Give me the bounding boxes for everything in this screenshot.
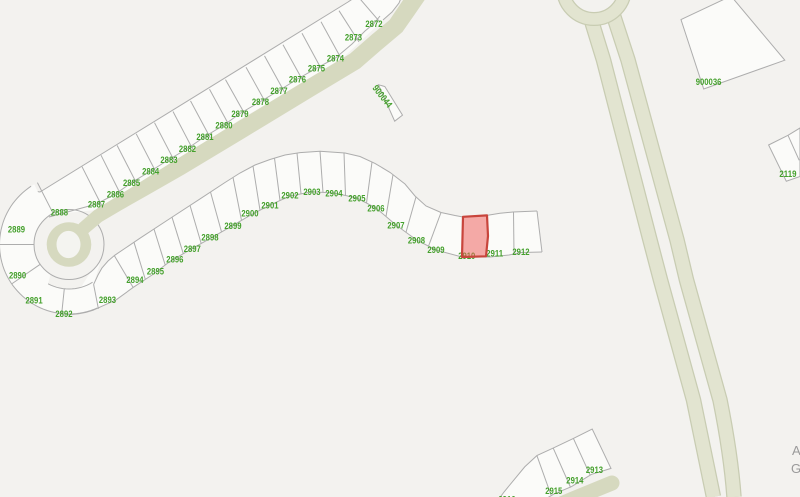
- svg-text:2886: 2886: [107, 188, 124, 199]
- svg-text:900036: 900036: [696, 76, 722, 87]
- svg-text:2881: 2881: [196, 131, 213, 142]
- svg-text:2874: 2874: [327, 52, 345, 63]
- svg-text:2873: 2873: [345, 31, 362, 42]
- svg-text:2887: 2887: [88, 198, 105, 209]
- svg-text:2905: 2905: [348, 192, 365, 203]
- svg-text:2885: 2885: [123, 177, 140, 188]
- svg-text:2890: 2890: [9, 269, 26, 280]
- svg-text:2880: 2880: [215, 119, 232, 130]
- svg-text:2899: 2899: [224, 220, 241, 231]
- svg-text:2889: 2889: [8, 223, 25, 234]
- svg-text:2895: 2895: [147, 265, 164, 276]
- svg-text:2876: 2876: [289, 73, 306, 84]
- svg-text:2909: 2909: [427, 244, 444, 255]
- svg-text:2893: 2893: [99, 294, 116, 305]
- svg-text:AS: AS: [792, 443, 800, 458]
- svg-text:2883: 2883: [160, 154, 177, 165]
- svg-text:2892: 2892: [55, 308, 72, 319]
- svg-text:2916: 2916: [498, 493, 515, 497]
- svg-text:2897: 2897: [184, 243, 201, 254]
- svg-text:2903: 2903: [303, 186, 320, 197]
- svg-text:2896: 2896: [166, 254, 183, 265]
- svg-text:2914: 2914: [566, 474, 584, 485]
- svg-text:2915: 2915: [545, 485, 562, 496]
- svg-text:2908: 2908: [408, 234, 425, 245]
- svg-text:2907: 2907: [387, 219, 404, 230]
- svg-text:GR: GR: [791, 461, 800, 476]
- svg-text:2912: 2912: [512, 246, 529, 257]
- svg-text:2891: 2891: [26, 295, 43, 306]
- svg-text:2879: 2879: [231, 108, 248, 119]
- svg-text:2900: 2900: [241, 207, 258, 218]
- svg-text:2906: 2906: [367, 202, 384, 213]
- svg-text:2872: 2872: [365, 18, 382, 29]
- svg-text:2902: 2902: [281, 189, 298, 200]
- svg-text:2888: 2888: [51, 206, 68, 217]
- svg-text:2898: 2898: [201, 232, 218, 243]
- svg-text:2894: 2894: [126, 274, 144, 285]
- svg-text:2884: 2884: [142, 165, 160, 176]
- svg-text:2913: 2913: [586, 464, 603, 475]
- svg-text:2901: 2901: [261, 199, 278, 210]
- svg-text:2904: 2904: [325, 187, 343, 198]
- svg-text:2878: 2878: [252, 96, 269, 107]
- svg-text:2875: 2875: [308, 63, 325, 74]
- svg-text:2877: 2877: [270, 85, 287, 96]
- svg-text:2882: 2882: [179, 143, 196, 154]
- svg-text:2119: 2119: [779, 168, 796, 179]
- svg-text:2911: 2911: [486, 247, 503, 258]
